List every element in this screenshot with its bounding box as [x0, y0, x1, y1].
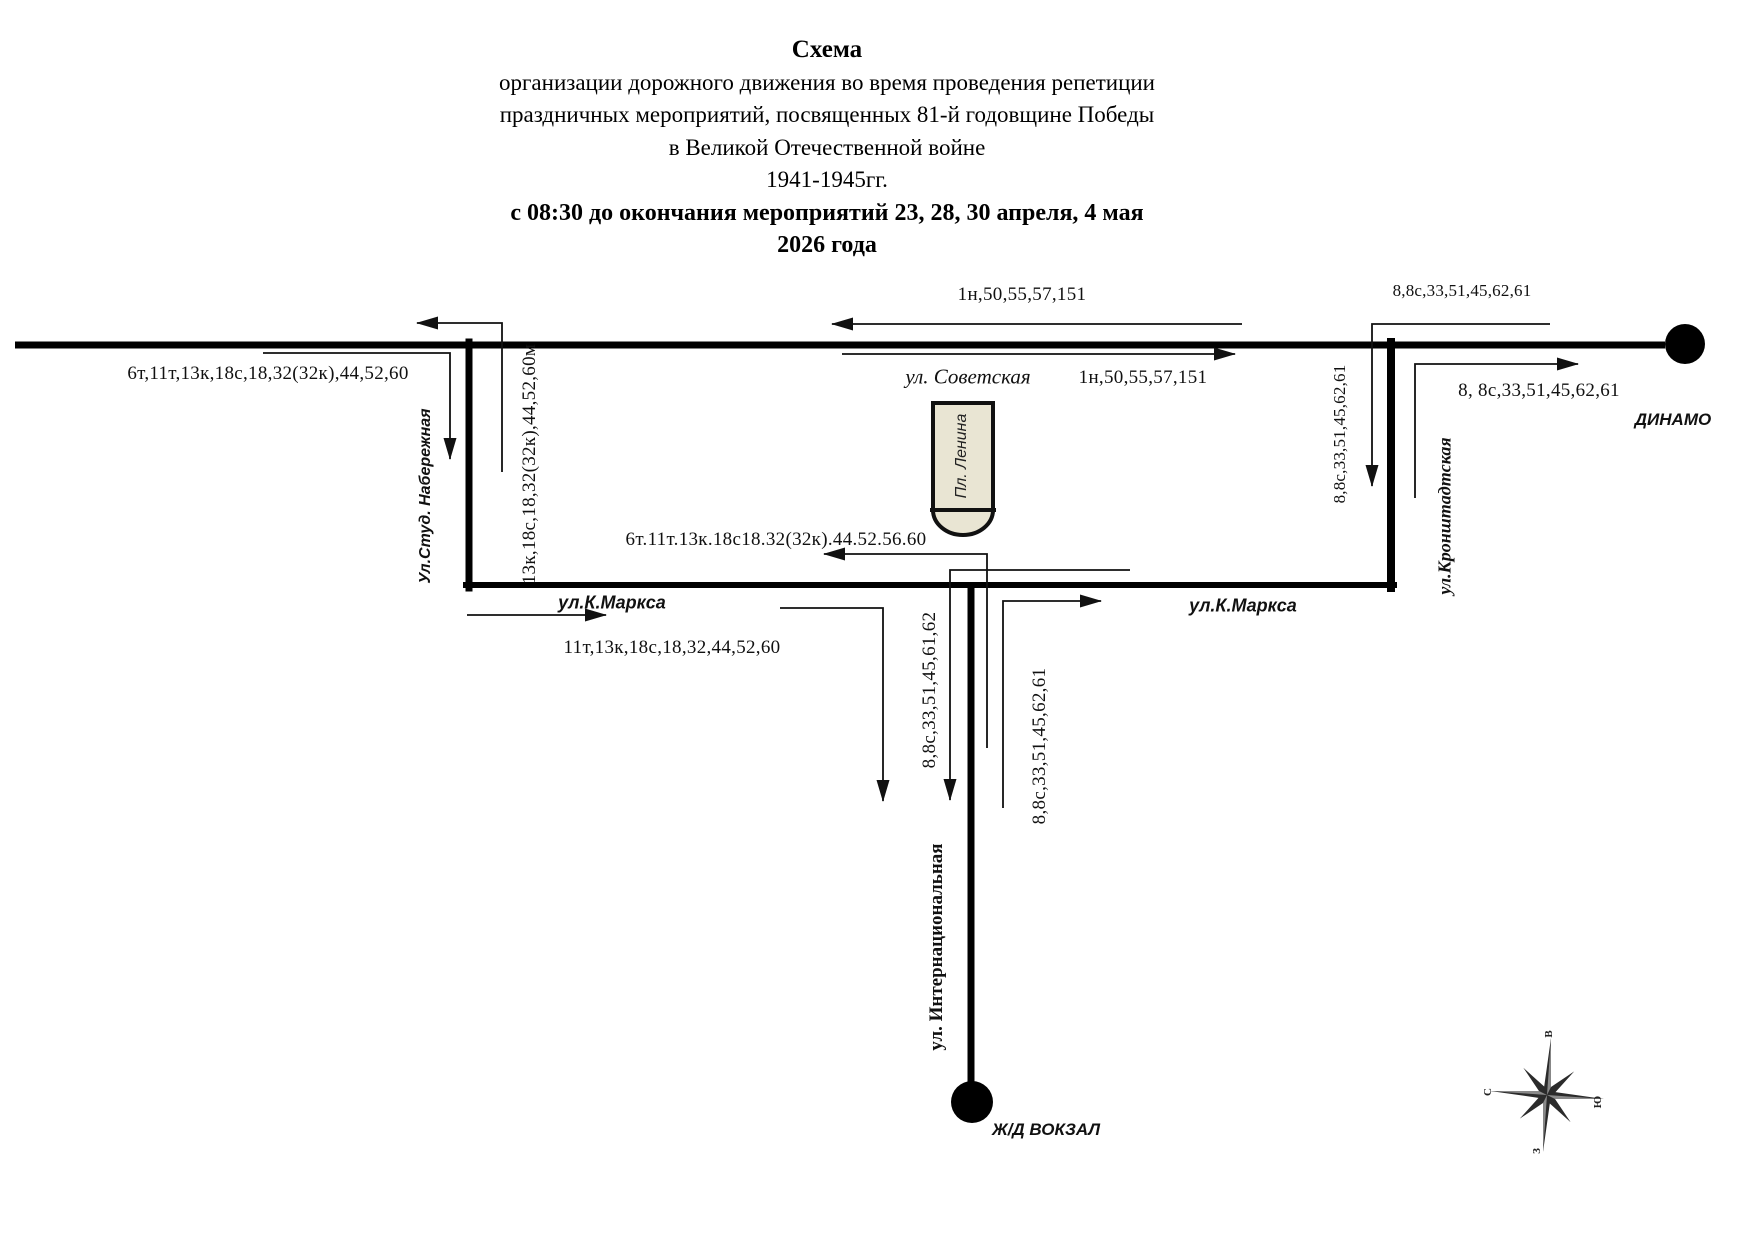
arrow-intern-north-turn-east [1003, 601, 1101, 808]
routes-label-lenina-west: 6т.11т.13к.18с18.32(32к).44.52.56.60 [626, 529, 927, 551]
landmark-label-zhd-vokzal: Ж/Д ВОКЗАЛ [992, 1120, 1100, 1140]
dinamo-terminal-circle [1665, 324, 1705, 364]
building-apse [933, 510, 993, 535]
compass-north-label: С [1482, 1088, 1494, 1096]
scheme-page: Схема организации дорожного движения во … [0, 0, 1755, 1241]
compass-star-shading [1486, 1034, 1608, 1156]
compass-rose [1486, 1034, 1608, 1156]
street-label-sovetskaya: ул. Советская [905, 365, 1030, 390]
title-line-6: с 08:30 до окончания мероприятий 23, 28,… [377, 197, 1277, 230]
routes-label-sovetskaya-east: 1н,50,55,57,151 [1079, 367, 1208, 389]
routes-label-intern-right: 8,8с,33,51,45,62,61 [1029, 668, 1051, 825]
compass-south-label: Ю [1592, 1096, 1604, 1108]
title-line-1: Схема [377, 34, 1277, 67]
roads [15, 342, 1665, 1085]
title-line-2: организации дорожного движения во время … [377, 67, 1277, 100]
routes-label-dinamo-top: 8,8с,33,51,45,62,61 [1393, 281, 1532, 301]
street-label-k-marksa-right: ул.К.Маркса [1189, 596, 1297, 617]
zhd-vokzal-terminal-circle [951, 1081, 993, 1123]
routes-label-marksa-west: 11т,13к,18с,18,32,44,52,60 [564, 637, 781, 659]
routes-label-stud-vertical: 13к,18с,18,32(32к),44,52,60м [519, 344, 541, 584]
street-label-stud-naberezhnaya: Ул.Студ. Набережная [417, 408, 435, 583]
compass-east-label: В [1543, 1030, 1555, 1037]
arrow-marksa-east-turn-south [780, 608, 883, 801]
title-block: Схема организации дорожного движения во … [377, 34, 1277, 262]
compass-west-label: З [1531, 1148, 1543, 1154]
routes-label-intern-left: 8,8с,33,51,45,61,62 [919, 612, 941, 769]
title-line-4: в Великой Отечественной войне [377, 132, 1277, 165]
street-label-kronshtadtskaya: ул.Кронштадтская [1435, 437, 1456, 594]
title-line-5: 1941-1945гг. [377, 164, 1277, 197]
building-label-pl-lenina: Пл. Ленина [953, 414, 971, 499]
street-label-internatsionalnaya: ул. Интернациональная [926, 843, 948, 1050]
routes-label-sovetskaya-west: 1н,50,55,57,151 [958, 284, 1087, 306]
title-line-3: праздничных мероприятий, посвященных 81-… [377, 99, 1277, 132]
landmark-label-dinamo: ДИНАМО [1635, 410, 1711, 430]
routes-label-kron-down: 8,8с,33,51,45,62,61 [1330, 365, 1350, 504]
street-label-k-marksa-left: ул.К.Маркса [558, 593, 666, 614]
title-line-7: 2026 года [377, 229, 1277, 262]
routes-label-dinamo-exit: 8, 8с,33,51,45,62,61 [1458, 380, 1620, 402]
routes-label-top-left: 6т,11т,13к,18с,18,32(32к),44,52,60 [127, 363, 408, 385]
